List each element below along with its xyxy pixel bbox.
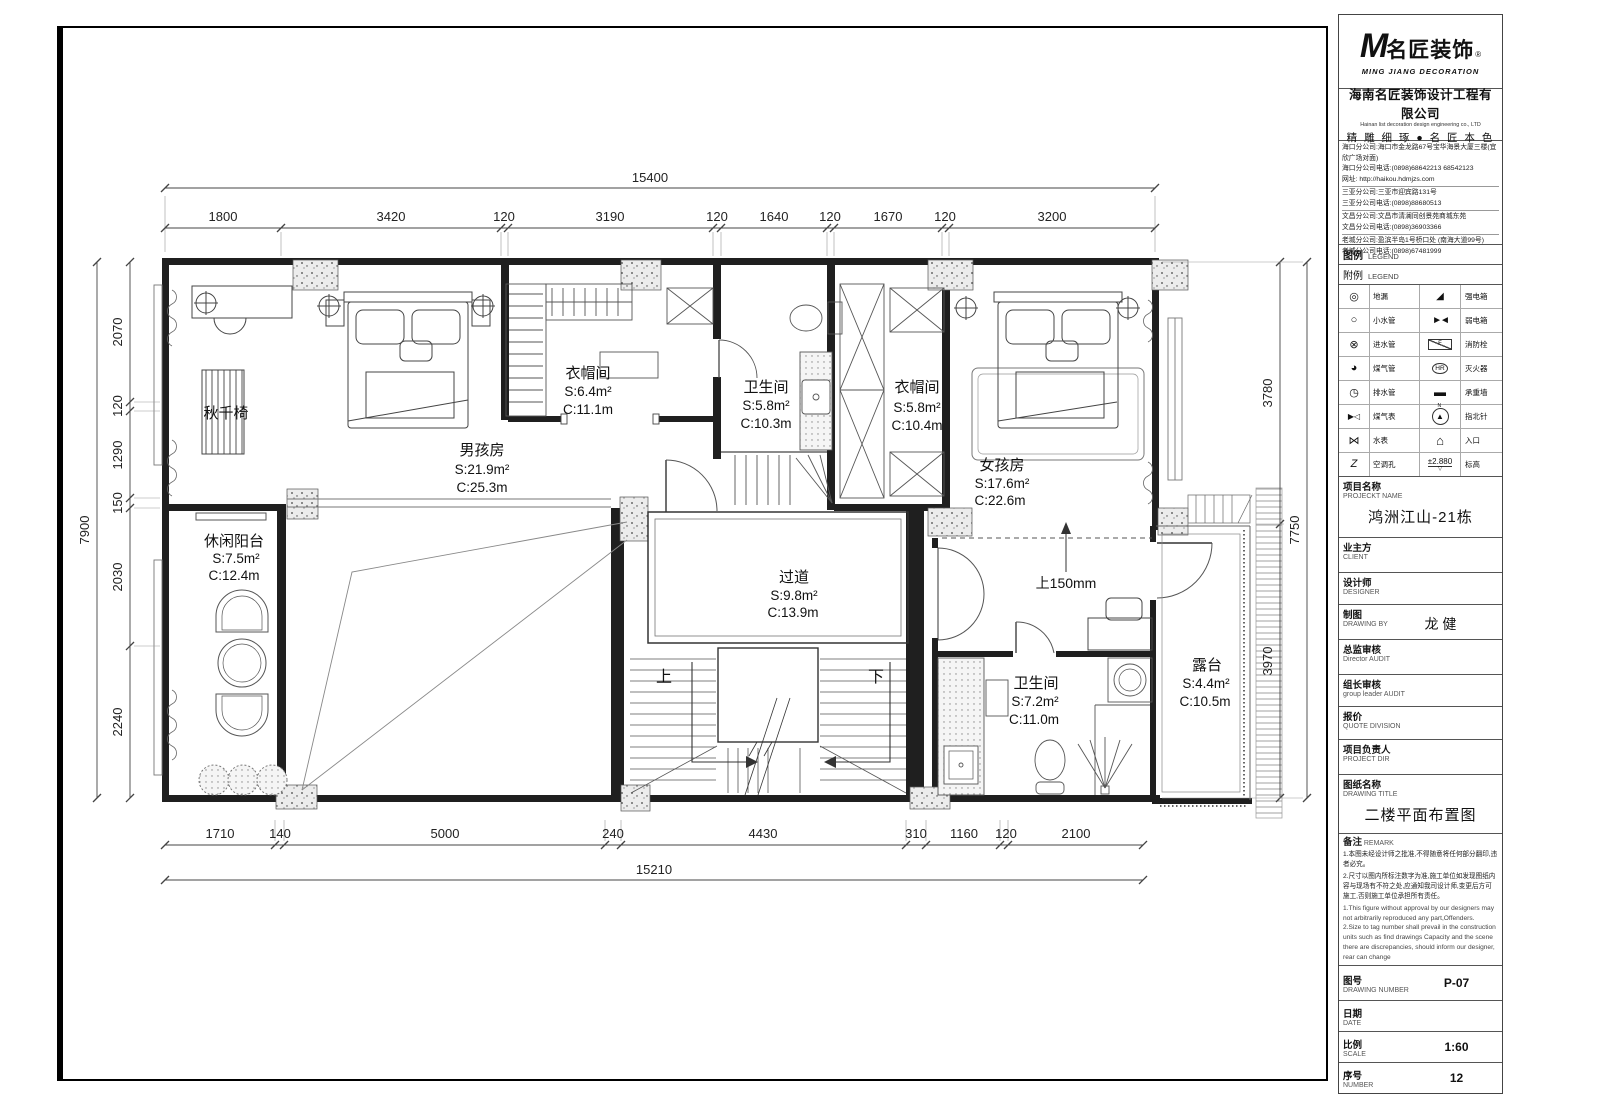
field-drawing-title: 图纸名称 DRAWING TITLE 二楼平面布置图 [1339, 775, 1502, 834]
footer-label-cn: 序号 [1343, 1068, 1415, 1082]
load-bearing-wall-icon: ▬ [1420, 381, 1461, 404]
field-label-cn: 业主方 [1343, 540, 1498, 554]
svg-text:2240: 2240 [110, 708, 125, 737]
footer-label-cn: 日期 [1343, 1006, 1415, 1020]
footer-label-en: NUMBER [1343, 1082, 1415, 1089]
field-label-en: QUOTE DIVISION [1343, 723, 1498, 730]
field-label-en: PROJECT DIR [1343, 756, 1498, 763]
branch-contacts: 海口分公司:海口市金龙路67号宝华海景大厦三楼(宜欣广场对面) 海口分公司电话:… [1339, 141, 1502, 245]
registered-mark-icon: ® [1475, 50, 1481, 59]
legend-label: 排水管 [1370, 381, 1420, 404]
field-label-cn: 报价 [1343, 709, 1498, 723]
footer-label-en: SCALE [1343, 1051, 1415, 1058]
svg-text:C:12.4m: C:12.4m [208, 568, 259, 583]
project-name-value: 鸿洲江山-21栋 [1343, 506, 1498, 527]
elevation-icon: ±2.880 ▽ [1420, 453, 1461, 476]
legend-title: 图例 LEGEND [1339, 245, 1502, 265]
legend-row: ◷ 排水管 ▬ 承重墙 [1339, 381, 1502, 405]
water-meter-icon: ⋈ [1339, 429, 1370, 452]
svg-text:秋千椅: 秋千椅 [203, 405, 248, 422]
legend-label: 空调孔 [1370, 453, 1420, 476]
remark-line-en: 2.Size to tag number shall prevail in th… [1343, 923, 1498, 963]
svg-text:C:22.6m: C:22.6m [974, 493, 1025, 508]
walls [162, 258, 1252, 804]
small-water-pipe-icon: ○ [1339, 309, 1370, 332]
fire-hydrant-icon: F [1420, 333, 1461, 356]
remark-line-en: 1.This figure without approval by our de… [1343, 904, 1498, 924]
company-logo: M 名匠装饰 ® MING JIANG DECORATION [1339, 15, 1502, 89]
field-label-cn: 总监审核 [1343, 642, 1498, 656]
svg-text:1670: 1670 [874, 209, 903, 224]
girls-room-furniture [942, 292, 1153, 650]
svg-text:240: 240 [602, 826, 624, 841]
svg-text:S:17.6m²: S:17.6m² [975, 476, 1030, 491]
svg-text:女孩房: 女孩房 [979, 456, 1024, 474]
footer-number: 序号NUMBER 12 [1339, 1063, 1502, 1093]
weak-electric-box-icon: ►◄ [1420, 309, 1461, 332]
svg-text:C:25.3m: C:25.3m [456, 480, 507, 495]
footer-label-en: DATE [1343, 1020, 1415, 1027]
elevation-triangle: ▽ [1438, 467, 1443, 471]
legend-row: ◎ 地漏 ◢ 强电箱 [1339, 285, 1502, 309]
field-label-cn: 设计师 [1343, 575, 1498, 589]
drawing-sheet: 15400 1800 3420 120 3190 120 1640 120 16… [0, 0, 1600, 1106]
field-label-en: PROJECKT NAME [1343, 493, 1498, 500]
contact-line: 文昌分公司:文昌市清澜同创景苑商城东苑 [1342, 212, 1499, 223]
contact-line: 网址: http://haikou.hdmjzs.com [1342, 175, 1499, 186]
svg-text:3190: 3190 [596, 209, 625, 224]
legend-row: ◕ 煤气管 HR 灭火器 [1339, 357, 1502, 381]
logo-m-icon: M [1360, 27, 1385, 66]
svg-text:衣帽间: 衣帽间 [894, 379, 939, 396]
svg-text:S:5.8m²: S:5.8m² [893, 400, 941, 415]
svg-text:15210: 15210 [636, 862, 672, 877]
boys-room-furniture [168, 286, 496, 496]
svg-text:男孩房: 男孩房 [459, 442, 504, 459]
doors [666, 460, 1212, 653]
footer-label-en: DRAWING NUMBER [1343, 987, 1415, 994]
svg-text:3200: 3200 [1038, 209, 1067, 224]
field-label-cn: 图纸名称 [1343, 777, 1498, 791]
svg-text:下: 下 [868, 669, 884, 686]
field-project-name: 项目名称 PROJECKT NAME 鸿洲江山-21栋 [1339, 477, 1502, 538]
svg-text:卫生间: 卫生间 [743, 379, 788, 396]
footer-date: 日期DATE [1339, 1001, 1502, 1032]
legend-label: 水表 [1370, 429, 1420, 452]
svg-text:7750: 7750 [1287, 516, 1302, 545]
svg-text:150: 150 [110, 492, 125, 514]
entrance-icon: ⌂ [1420, 429, 1461, 452]
svg-text:7900: 7900 [77, 516, 92, 545]
svg-text:C:11.1m: C:11.1m [563, 402, 613, 417]
svg-text:1800: 1800 [209, 209, 238, 224]
field-label-en: group leader AUDIT [1343, 691, 1498, 698]
contact-line: 文昌分公司电话:(0898)36903366 [1342, 223, 1499, 234]
svg-text:1290: 1290 [110, 441, 125, 470]
legend-label: 煤气表 [1370, 405, 1420, 428]
footer-label-cn: 比例 [1343, 1037, 1415, 1051]
logo-brand-cn: 名匠装饰 [1386, 34, 1474, 64]
svg-text:上150mm: 上150mm [1036, 575, 1097, 591]
svg-text:上: 上 [656, 668, 672, 686]
scale-value: 1:60 [1415, 1040, 1498, 1054]
svg-text:S:6.4m²: S:6.4m² [564, 384, 612, 399]
field-label-cn: 项目名称 [1343, 479, 1498, 493]
legend-subtitle-cn: 附例 [1343, 267, 1363, 282]
fire-extinguisher-glyph: HR [1432, 363, 1447, 374]
legend-label: 地漏 [1370, 285, 1420, 308]
legend-label: 灭火器 [1461, 363, 1502, 374]
legend-label: 进水管 [1370, 333, 1420, 356]
svg-text:S:9.8m²: S:9.8m² [770, 588, 818, 603]
field-drawing-by: 制图 DRAWING BY 龙 健 [1339, 605, 1502, 640]
remark-line: 2.尺寸以图内所标注数字为准,施工单位如发现图纸内容与现场有不符之处,应通知我司… [1343, 872, 1498, 902]
legend-row: ▶◁ 煤气表 N▲ 指北针 [1339, 405, 1502, 429]
legend-title-cn: 图例 [1343, 247, 1363, 262]
legend-label: 承重墙 [1461, 387, 1502, 398]
legend-row: ⊗ 进水管 F 消防栓 [1339, 333, 1502, 357]
svg-text:C:13.9m: C:13.9m [767, 605, 818, 620]
svg-text:1160: 1160 [950, 826, 978, 841]
remark-title-en: REMARK [1364, 840, 1394, 847]
floor-plan: 15400 1800 3420 120 3190 120 1640 120 16… [0, 0, 1330, 1106]
legend-row: Z 空调孔 ±2.880 ▽ 标高 [1339, 453, 1502, 476]
svg-text:3970: 3970 [1260, 647, 1275, 676]
legend-label: 入口 [1461, 435, 1502, 446]
field-designer: 设计师 DESIGNER [1339, 573, 1502, 605]
svg-text:休闲阳台: 休闲阳台 [204, 533, 264, 550]
legend-row: ⋈ 水表 ⌂ 入口 [1339, 429, 1502, 453]
field-client: 业主方 CLIENT [1339, 538, 1502, 573]
legend-subtitle: 附例 LEGEND [1339, 265, 1502, 285]
contact-line: 三亚分公司:三亚市迎宾路131号 [1342, 188, 1499, 199]
company-name-block: 海南名匠装饰设计工程有限公司 Hainan list decoration de… [1339, 89, 1502, 141]
svg-text:C:11.0m: C:11.0m [1009, 712, 1059, 727]
remark-block: 备注 REMARK 1.本图未经设计师之批准,不得随意将任何部分翻印,违者必究。… [1339, 834, 1502, 966]
svg-text:5000: 5000 [431, 826, 460, 841]
logo-brand-en: MING JIANG DECORATION [1362, 67, 1480, 76]
contact-line: 三亚分公司电话:(0898)88680513 [1342, 199, 1499, 210]
fire-extinguisher-icon: HR [1420, 357, 1461, 380]
gas-pipe-icon: ◕ [1339, 357, 1370, 380]
floor-drain-icon: ◎ [1339, 285, 1370, 308]
svg-text:1710: 1710 [206, 826, 235, 841]
legend-label: 煤气管 [1370, 357, 1420, 380]
svg-text:衣帽间: 衣帽间 [565, 365, 610, 382]
legend-label: 指北针 [1461, 411, 1502, 422]
field-label-en: DRAWING TITLE [1343, 791, 1498, 798]
company-name-en: Hainan list decoration design engineerin… [1351, 122, 1491, 127]
svg-text:C:10.5m: C:10.5m [1179, 694, 1230, 709]
svg-text:S:4.4m²: S:4.4m² [1182, 676, 1230, 691]
field-leader-audit: 组长审核 group leader AUDIT [1339, 675, 1502, 707]
legend-subtitle-en: LEGEND [1368, 272, 1399, 281]
svg-text:310: 310 [905, 826, 927, 841]
drain-pipe-icon: ◷ [1339, 381, 1370, 404]
svg-text:4430: 4430 [749, 826, 778, 841]
field-label-cn: 组长审核 [1343, 677, 1498, 691]
fire-hydrant-glyph: F [1428, 339, 1452, 350]
remark-title-cn: 备注 [1343, 837, 1362, 848]
field-label-en: Director AUDIT [1343, 656, 1498, 663]
north-triangle: ▲ [1436, 412, 1444, 421]
svg-text:120: 120 [995, 826, 1017, 841]
svg-text:15400: 15400 [632, 170, 668, 185]
remark-line: 1.本图未经设计师之批准,不得随意将任何部分翻印,违者必究。 [1343, 850, 1498, 870]
svg-text:3780: 3780 [1260, 379, 1275, 408]
void-slope-lines [302, 522, 627, 790]
legend-title-en: LEGEND [1368, 252, 1399, 261]
sheet-number-value: 12 [1415, 1071, 1498, 1085]
field-quote: 报价 QUOTE DIVISION [1339, 707, 1502, 740]
svg-text:120: 120 [493, 209, 515, 224]
svg-text:C:10.3m: C:10.3m [740, 416, 791, 431]
contact-line: 海口分公司电话:(0898)68642213 68542123 [1342, 164, 1499, 175]
svg-text:2100: 2100 [1062, 826, 1091, 841]
gas-meter-icon: ▶◁ [1339, 405, 1370, 428]
svg-text:120: 120 [934, 209, 956, 224]
svg-text:2030: 2030 [110, 563, 125, 592]
field-project-dir: 项目负责人 PROJECT DIR [1339, 740, 1502, 775]
svg-text:140: 140 [269, 826, 291, 841]
contact-line: 海口分公司:海口市金龙路67号宝华海景大厦三楼(宜欣广场对面) [1342, 143, 1499, 164]
svg-text:S:7.5m²: S:7.5m² [212, 551, 260, 566]
legend-label: 小水管 [1370, 309, 1420, 332]
svg-text:1640: 1640 [760, 209, 789, 224]
drawing-number-value: P-07 [1415, 976, 1498, 990]
svg-text:120: 120 [819, 209, 841, 224]
svg-text:3420: 3420 [377, 209, 406, 224]
field-label-en: DESIGNER [1343, 589, 1498, 596]
footer-drawing-number: 图号DRAWING NUMBER P-07 [1339, 966, 1502, 1001]
field-label-cn: 项目负责人 [1343, 742, 1498, 756]
svg-text:2070: 2070 [110, 318, 125, 347]
legend-row: ○ 小水管 ►◄ 弱电箱 [1339, 309, 1502, 333]
company-name-cn: 海南名匠装饰设计工程有限公司 [1343, 84, 1498, 122]
footer-scale: 比例SCALE 1:60 [1339, 1032, 1502, 1063]
ac-hole-icon: Z [1339, 453, 1370, 476]
field-label-en: CLIENT [1343, 554, 1498, 561]
legend-table: ◎ 地漏 ◢ 强电箱 ○ 小水管 ►◄ 弱电箱 ⊗ 进水管 F 消防栓 ◕ 煤气… [1339, 285, 1502, 477]
strong-electric-box-icon: ◢ [1420, 285, 1461, 308]
svg-text:S:7.2m²: S:7.2m² [1011, 694, 1059, 709]
footer-label-cn: 图号 [1343, 973, 1415, 987]
svg-text:S:21.9m²: S:21.9m² [455, 462, 510, 477]
legend-label: 弱电箱 [1461, 315, 1502, 326]
svg-text:S:5.8m²: S:5.8m² [742, 398, 790, 413]
title-block: M 名匠装饰 ® MING JIANG DECORATION 海南名匠装饰设计工… [1338, 14, 1503, 1094]
drawing-by-value: 龙 健 [1383, 614, 1498, 634]
drawing-title-value: 二楼平面布置图 [1343, 804, 1498, 825]
north-arrow-icon: N▲ [1420, 405, 1461, 428]
svg-text:露台: 露台 [1192, 657, 1222, 674]
svg-text:120: 120 [110, 395, 125, 417]
north-letter: N [1438, 403, 1442, 409]
svg-text:过道: 过道 [779, 569, 809, 586]
svg-text:120: 120 [706, 209, 728, 224]
legend-label: 消防栓 [1461, 339, 1502, 350]
svg-text:卫生间: 卫生间 [1013, 675, 1058, 692]
legend-label: 标高 [1461, 459, 1502, 470]
svg-text:C:10.4m: C:10.4m [891, 418, 942, 433]
legend-label: 强电箱 [1461, 291, 1502, 302]
water-inlet-icon: ⊗ [1339, 333, 1370, 356]
field-director-audit: 总监审核 Director AUDIT [1339, 640, 1502, 675]
